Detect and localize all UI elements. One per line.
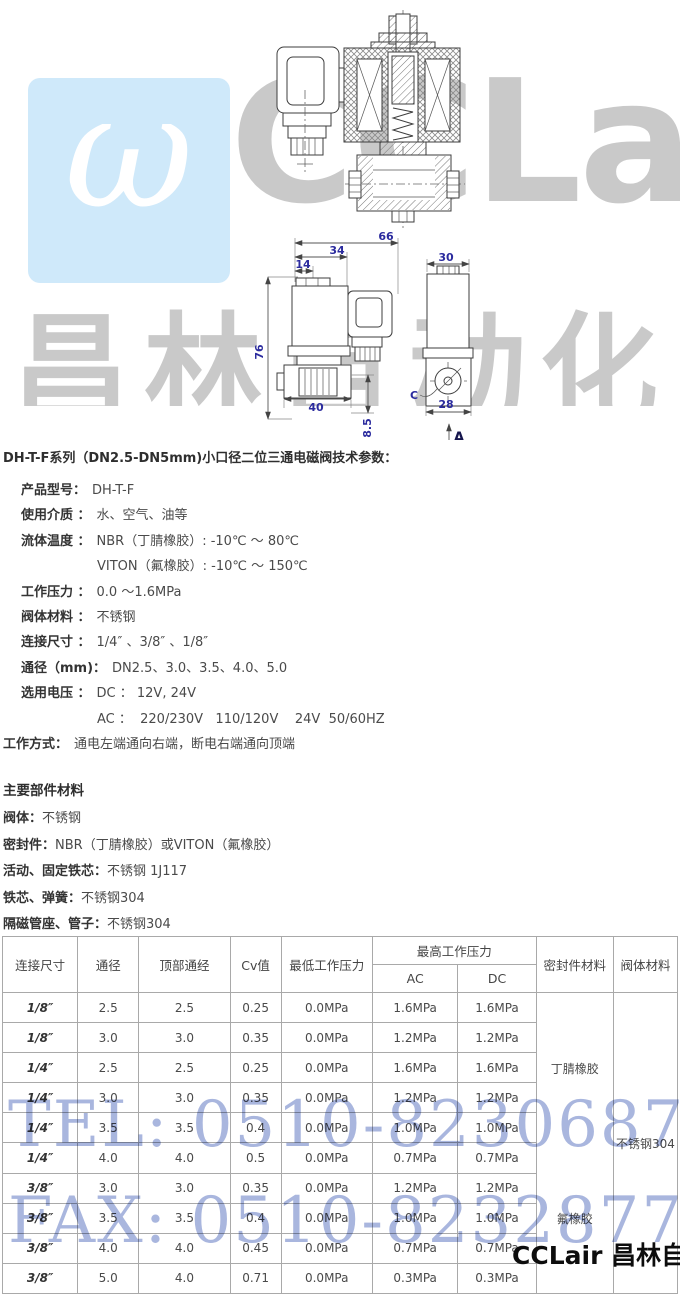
spec-row: 连接尺寸 ：1/4″ 、3/8″ 、1/8″	[0, 630, 680, 655]
spec-label: 选用电压 ：	[21, 686, 91, 701]
col-header-ac: AC	[372, 965, 457, 993]
table-cell: 1.6MPa	[372, 1053, 457, 1083]
spec-label: 流体温度 ：	[21, 534, 91, 549]
table-cell: 0.0MPa	[281, 1023, 372, 1053]
spec-row: VITON（氟橡胶）: -10℃ ～ 150℃	[0, 554, 680, 579]
table-cell: 3/8″	[3, 1233, 78, 1263]
spec-row: 阀体材料 ：不锈钢	[0, 605, 680, 630]
col-header-connection-size: 连接尺寸	[3, 937, 78, 993]
table-cell: 3/8″	[3, 1263, 78, 1293]
table-cell: 0.7MPa	[458, 1143, 536, 1173]
table-cell: 1/4″	[3, 1143, 78, 1173]
spec-value: NBR（丁腈橡胶）: -10℃ ～ 80℃	[97, 534, 299, 549]
table-cell: 3.0	[139, 1173, 230, 1203]
spec-row: 选用电压 ：DC ： 12V, 24V	[0, 681, 680, 706]
table-cell: 1.6MPa	[372, 993, 457, 1023]
spec-label: 通径（mm)：	[21, 661, 106, 676]
table-cell: 0.0MPa	[281, 1233, 372, 1263]
table-cell: 1.6MPa	[458, 993, 536, 1023]
dim-label-side-width: 30	[438, 251, 454, 264]
col-header-diameter: 通径	[78, 937, 139, 993]
table-cell: 0.25	[230, 993, 281, 1023]
spec-row: 工作方式：通电左端通向右端，断电右端通向顶端	[0, 732, 680, 757]
table-cell: 1/4″	[3, 1053, 78, 1083]
front-view: 30 C 28 A	[410, 251, 473, 440]
table-cell: 0.4	[230, 1113, 281, 1143]
table-cell: 0.35	[230, 1173, 281, 1203]
material-label: 隔磁管座、管子：	[3, 917, 107, 932]
spec-value: DN2.5、3.0、3.5、4.0、5.0	[112, 661, 287, 676]
table-cell: 1.6MPa	[458, 1053, 536, 1083]
table-cell: 3.5	[139, 1113, 230, 1143]
col-header-max-pressure: 最高工作压力	[372, 937, 536, 965]
spec-row: 通径（mm)：DN2.5、3.0、3.5、4.0、5.0	[0, 656, 680, 681]
material-label: 阀体：	[3, 811, 42, 826]
dim-label-port-offset: 8.5	[361, 418, 374, 438]
table-row: 1/8″2.52.50.250.0MPa1.6MPa1.6MPa丁腈橡胶氟橡胶不…	[3, 993, 678, 1023]
footer-brand: CCLair 昌林自动化	[512, 1236, 680, 1272]
material-value: 不锈钢 1J117	[107, 864, 187, 879]
table-cell: 3.0	[139, 1083, 230, 1113]
table-cell: 3.0	[78, 1083, 139, 1113]
table-cell: 2.5	[78, 993, 139, 1023]
table-cell: 0.3MPa	[372, 1263, 457, 1293]
table-cell: 3/8″	[3, 1203, 78, 1233]
spec-value: 水、空气、油等	[97, 508, 188, 523]
table-cell: 4.0	[139, 1233, 230, 1263]
table-cell: 0.0MPa	[281, 993, 372, 1023]
spec-value: 0.0 ～1.6MPa	[97, 585, 182, 600]
table-cell: 3.0	[78, 1173, 139, 1203]
col-header-min-pressure: 最低工作压力	[281, 937, 372, 993]
material-label: 活动、固定铁芯：	[3, 864, 107, 879]
spec-section: DH-T-F系列（DN2.5-DN5mm)小口径二位三通电磁阀技术参数： 产品型…	[0, 447, 680, 757]
spec-rows: 产品型号：DH-T-F使用介质 ：水、空气、油等流体温度 ：NBR（丁腈橡胶）:…	[0, 478, 680, 757]
material-row: 隔磁管座、管子：不锈钢304	[0, 912, 680, 939]
dim-label-coil-width: 34	[329, 244, 345, 257]
table-cell: 1.0MPa	[372, 1113, 457, 1143]
table-cell: 1.2MPa	[372, 1173, 457, 1203]
table-cell: 0.7MPa	[372, 1143, 457, 1173]
materials-title: 主要部件材料	[0, 779, 680, 799]
table-cell: 3.5	[78, 1113, 139, 1143]
table-cell: 3/8″	[3, 1173, 78, 1203]
table-header-row: 连接尺寸 通径 顶部通经 Cv值 最低工作压力 最高工作压力 密封件材料 阀体材…	[3, 937, 678, 965]
spec-label: 使用介质 ：	[21, 508, 91, 523]
table-cell: 0.45	[230, 1233, 281, 1263]
table-cell: 0.0MPa	[281, 1203, 372, 1233]
spec-label: 产品型号：	[21, 483, 86, 498]
spec-row: 工作压力 ：0.0 ～1.6MPa	[0, 580, 680, 605]
table-cell: 0.71	[230, 1263, 281, 1293]
table-cell: 1.2MPa	[372, 1023, 457, 1053]
material-value: NBR（丁腈橡胶）或VITON（氟橡胶）	[55, 838, 279, 853]
table-cell: 0.5	[230, 1143, 281, 1173]
table-cell: 1/8″	[3, 1023, 78, 1053]
material-value: 不锈钢304	[107, 917, 171, 932]
table-cell: 4.0	[78, 1233, 139, 1263]
spec-value: 不锈钢	[97, 610, 136, 625]
table-cell: 0.7MPa	[372, 1233, 457, 1263]
spec-row: 使用介质 ：水、空气、油等	[0, 503, 680, 528]
col-header-dc: DC	[458, 965, 536, 993]
table-cell: 2.5	[78, 1053, 139, 1083]
col-header-top-diameter: 顶部通经	[139, 937, 230, 993]
spec-row: 产品型号：DH-T-F	[0, 478, 680, 503]
table-cell: 1/4″	[3, 1113, 78, 1143]
technical-drawing-section: ω CCLair 昌林自动化	[0, 0, 680, 440]
table-cell: 5.0	[78, 1263, 139, 1293]
side-view: 66 34 14 76	[253, 230, 398, 438]
seal-material-nbr: 丁腈橡胶	[537, 1060, 613, 1077]
material-row: 铁芯、弹簧：不锈钢304	[0, 886, 680, 913]
table-cell: 0.0MPa	[281, 1113, 372, 1143]
col-header-seal-material: 密封件材料	[536, 937, 613, 993]
material-row: 密封件：NBR（丁腈橡胶）或VITON（氟橡胶）	[0, 833, 680, 860]
table-cell: 0.0MPa	[281, 1173, 372, 1203]
table-cell: 3.5	[78, 1203, 139, 1233]
table-cell: 2.5	[139, 993, 230, 1023]
valve-drawings: 66 34 14 76	[0, 0, 680, 440]
spec-value: DH-T-F	[92, 483, 134, 498]
dim-label-side-body-width: 28	[438, 398, 453, 411]
material-row: 活动、固定铁芯：不锈钢 1J117	[0, 859, 680, 886]
table-cell: 0.0MPa	[281, 1053, 372, 1083]
dim-label-total-width: 66	[378, 230, 394, 243]
table-cell: 0.25	[230, 1053, 281, 1083]
dim-label-cap-offset: 14	[295, 258, 311, 271]
table-cell: 2.5	[139, 1053, 230, 1083]
spec-value: 通电左端通向右端，断电右端通向顶端	[74, 737, 295, 752]
table-cell: 4.0	[139, 1263, 230, 1293]
spec-row: 流体温度 ：NBR（丁腈橡胶）: -10℃ ～ 80℃	[0, 529, 680, 554]
table-cell: 1.2MPa	[372, 1083, 457, 1113]
dim-label-port: C	[410, 389, 418, 402]
table-cell: 1.0MPa	[372, 1203, 457, 1233]
table-cell: 1.0MPa	[458, 1203, 536, 1233]
materials-section: 主要部件材料 阀体：不锈钢密封件：NBR（丁腈橡胶）或VITON（氟橡胶）活动、…	[0, 779, 680, 939]
material-label: 密封件：	[3, 838, 55, 853]
table-cell: 0.35	[230, 1023, 281, 1053]
table-cell: 0.35	[230, 1083, 281, 1113]
table-cell: 0.0MPa	[281, 1083, 372, 1113]
page-title: DH-T-F系列（DN2.5-DN5mm)小口径二位三通电磁阀技术参数：	[0, 447, 680, 466]
material-value: 不锈钢	[42, 811, 81, 826]
table-cell: 3.0	[78, 1023, 139, 1053]
spec-label: 工作方式：	[3, 737, 68, 752]
section-arrow-label: A	[454, 430, 465, 440]
spec-label: 阀体材料 ：	[21, 610, 91, 625]
spec-value: AC ： 220/230V 110/120V 24V 50/60HZ	[97, 712, 385, 727]
material-row: 阀体：不锈钢	[0, 806, 680, 833]
material-label: 铁芯、弹簧：	[3, 891, 81, 906]
seal-material-viton: 氟橡胶	[537, 1210, 613, 1227]
spec-label: 连接尺寸 ：	[21, 635, 91, 650]
cross-section-view	[277, 10, 465, 228]
col-header-cv: Cv值	[230, 937, 281, 993]
material-rows: 阀体：不锈钢密封件：NBR（丁腈橡胶）或VITON（氟橡胶）活动、固定铁芯：不锈…	[0, 806, 680, 939]
table-cell: 3.0	[139, 1023, 230, 1053]
dim-label-height: 76	[253, 344, 266, 360]
table-cell: 4.0	[78, 1143, 139, 1173]
table-cell: 0.0MPa	[281, 1143, 372, 1173]
dim-label-body-width: 40	[308, 401, 324, 414]
spec-value: VITON（氟橡胶）: -10℃ ～ 150℃	[97, 559, 308, 574]
table-cell: 1.0MPa	[458, 1113, 536, 1143]
table-cell: 1/8″	[3, 993, 78, 1023]
table-cell: 0.4	[230, 1203, 281, 1233]
table-cell: 3.5	[139, 1203, 230, 1233]
spec-row: AC ： 220/230V 110/120V 24V 50/60HZ	[0, 707, 680, 732]
table-cell: 0.0MPa	[281, 1263, 372, 1293]
table-cell: 1.2MPa	[458, 1173, 536, 1203]
table-cell: 4.0	[139, 1143, 230, 1173]
spec-value: DC ： 12V, 24V	[97, 686, 197, 701]
table-cell: 1.2MPa	[458, 1023, 536, 1053]
table-cell: 1/4″	[3, 1083, 78, 1113]
col-header-body-material: 阀体材料	[613, 937, 677, 993]
material-value: 不锈钢304	[81, 891, 145, 906]
spec-label: 工作压力 ：	[21, 585, 91, 600]
table-cell: 1.2MPa	[458, 1083, 536, 1113]
spec-value: 1/4″ 、3/8″ 、1/8″	[97, 635, 209, 650]
